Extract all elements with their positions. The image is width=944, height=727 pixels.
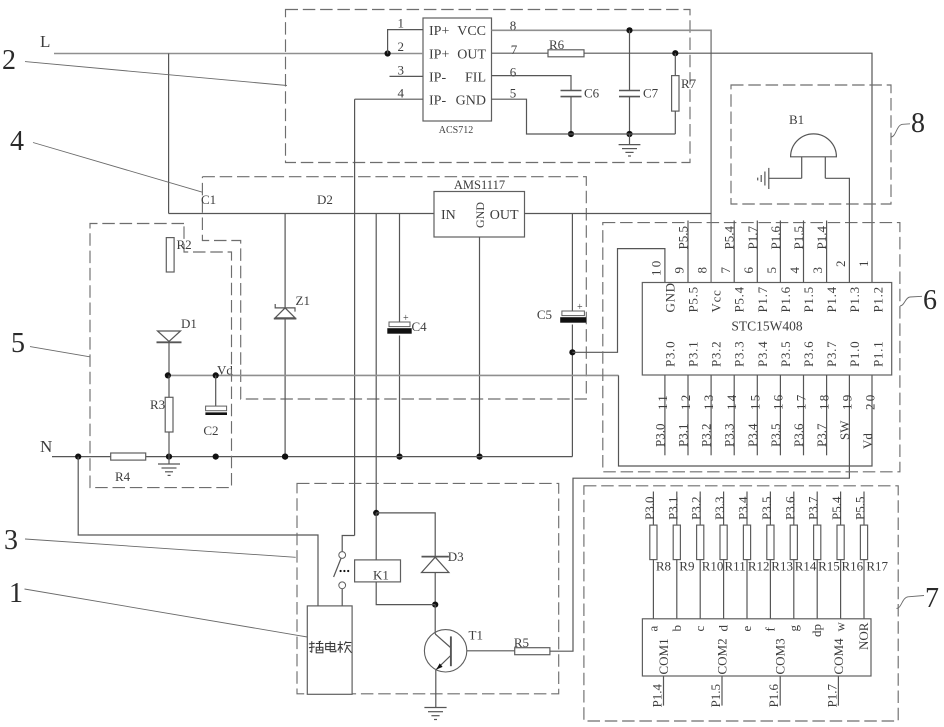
svg-text:R5: R5: [514, 635, 529, 650]
svg-text:1: 1: [398, 16, 405, 31]
svg-text:IP+: IP+: [429, 24, 449, 39]
svg-text:8: 8: [695, 267, 710, 274]
svg-text:P1.4: P1.4: [650, 684, 665, 708]
svg-text:C1: C1: [201, 192, 216, 207]
svg-text:OUT: OUT: [457, 48, 486, 63]
svg-text:+: +: [577, 302, 583, 313]
svg-text:w: w: [833, 622, 848, 632]
svg-text:P3.3: P3.3: [712, 497, 727, 520]
svg-text:K1: K1: [373, 568, 389, 583]
svg-text:P3.2: P3.2: [699, 424, 714, 447]
svg-text:P3.1: P3.1: [676, 424, 691, 447]
svg-text:FIL: FIL: [465, 71, 486, 86]
svg-text:GND: GND: [473, 202, 487, 228]
svg-text:P1.2: P1.2: [870, 286, 885, 312]
svg-text:R3: R3: [150, 397, 165, 412]
svg-text:a: a: [645, 626, 660, 632]
svg-text:7: 7: [511, 42, 518, 57]
svg-text:P5.5: P5.5: [676, 226, 691, 249]
svg-text:P1.5: P1.5: [791, 226, 806, 249]
svg-text:R13: R13: [771, 559, 793, 574]
svg-text:P1.0: P1.0: [847, 341, 862, 367]
svg-text:SW: SW: [837, 420, 852, 440]
svg-text:B1: B1: [789, 112, 804, 127]
svg-text:IP+: IP+: [429, 48, 449, 63]
svg-text:3: 3: [398, 63, 405, 78]
svg-text:P1.4: P1.4: [814, 226, 829, 250]
svg-text:GND: GND: [662, 282, 677, 312]
svg-text:C7: C7: [643, 86, 659, 101]
svg-text:R2: R2: [177, 237, 192, 252]
svg-text:4: 4: [398, 86, 405, 101]
svg-text:17: 17: [794, 393, 809, 410]
svg-text:R4: R4: [115, 469, 131, 484]
svg-text:4: 4: [10, 126, 24, 157]
svg-text:5: 5: [764, 267, 779, 274]
svg-text:R12: R12: [748, 559, 770, 574]
svg-text:D2: D2: [317, 192, 333, 207]
svg-text:VCC: VCC: [457, 24, 486, 39]
svg-text:P3.1: P3.1: [686, 341, 701, 367]
svg-text:P1.6: P1.6: [778, 286, 793, 312]
svg-text:D1: D1: [181, 316, 197, 331]
svg-text:7: 7: [925, 583, 939, 614]
svg-text:3: 3: [4, 525, 18, 556]
svg-text:P5.4: P5.4: [829, 496, 844, 520]
svg-text:P3.6: P3.6: [791, 423, 806, 447]
svg-text:7: 7: [718, 267, 733, 274]
svg-text:P5.5: P5.5: [853, 497, 868, 520]
svg-text:P3.0: P3.0: [652, 424, 667, 447]
svg-text:P1.6: P1.6: [766, 684, 781, 708]
svg-text:14: 14: [724, 393, 739, 410]
svg-text:9: 9: [672, 267, 687, 274]
svg-text:P3.5: P3.5: [759, 497, 774, 520]
svg-text:f: f: [762, 627, 777, 632]
svg-text:R15: R15: [818, 559, 840, 574]
svg-text:P3.6: P3.6: [782, 496, 797, 520]
svg-text:11: 11: [655, 393, 670, 410]
svg-text:P3.7: P3.7: [806, 496, 821, 520]
svg-text:STC15W408: STC15W408: [731, 319, 803, 334]
svg-text:2: 2: [398, 39, 405, 54]
svg-text:20: 20: [862, 393, 877, 410]
svg-text:5: 5: [510, 86, 517, 101]
svg-text:C5: C5: [537, 307, 552, 322]
svg-text:IP-: IP-: [429, 71, 446, 86]
svg-text:P3.5: P3.5: [778, 341, 793, 367]
svg-text:IN: IN: [441, 208, 456, 223]
svg-text:P1.5: P1.5: [801, 286, 816, 312]
svg-text:P3.6: P3.6: [801, 341, 816, 367]
svg-text:P3.3: P3.3: [732, 341, 747, 367]
svg-text:R9: R9: [679, 559, 694, 574]
svg-text:5: 5: [11, 328, 25, 359]
svg-text:10: 10: [649, 259, 664, 276]
svg-text:C2: C2: [203, 423, 218, 438]
svg-text:P1.7: P1.7: [755, 286, 770, 312]
svg-text:16: 16: [770, 393, 785, 410]
svg-text:Vcc: Vcc: [709, 289, 724, 312]
svg-text:c: c: [692, 626, 707, 632]
svg-text:R11: R11: [725, 559, 746, 574]
svg-text:Z1: Z1: [296, 293, 310, 308]
svg-text:P3.2: P3.2: [689, 497, 704, 520]
svg-text:P3.5: P3.5: [768, 424, 783, 447]
svg-text:COM1: COM1: [656, 638, 671, 674]
svg-text:N: N: [40, 437, 52, 456]
svg-text:19: 19: [839, 393, 854, 410]
svg-text:T1: T1: [469, 628, 483, 643]
svg-text:OUT: OUT: [490, 208, 519, 223]
svg-text:2: 2: [2, 45, 16, 76]
svg-text:P3.0: P3.0: [662, 341, 677, 367]
svg-text:P1.7: P1.7: [745, 226, 760, 250]
svg-text:L: L: [40, 32, 50, 51]
svg-text:d: d: [716, 625, 731, 632]
svg-text:dp: dp: [809, 624, 824, 637]
svg-text:IP-: IP-: [429, 94, 446, 109]
svg-text:COM3: COM3: [773, 638, 788, 674]
svg-text:15: 15: [747, 393, 762, 410]
svg-text:8: 8: [911, 108, 925, 139]
svg-text:P3.3: P3.3: [722, 424, 737, 447]
svg-text:18: 18: [817, 393, 832, 410]
svg-text:12: 12: [678, 393, 693, 410]
svg-text:COM2: COM2: [715, 638, 730, 674]
svg-text:b: b: [669, 625, 684, 632]
svg-text:13: 13: [701, 393, 716, 410]
svg-text:R7: R7: [681, 76, 697, 91]
svg-text:P1.4: P1.4: [824, 286, 839, 312]
svg-text:Vd: Vd: [860, 433, 875, 449]
svg-text:g: g: [786, 625, 801, 632]
svg-text:P3.4: P3.4: [755, 341, 770, 367]
svg-text:P1.5: P1.5: [708, 684, 723, 707]
svg-text:e: e: [739, 626, 754, 632]
svg-text:COM4: COM4: [831, 638, 846, 675]
svg-text:C4: C4: [412, 319, 428, 334]
svg-text:R16: R16: [842, 559, 864, 574]
svg-text:P3.7: P3.7: [824, 341, 839, 367]
svg-text:P1.6: P1.6: [768, 226, 783, 250]
svg-text:R10: R10: [702, 559, 724, 574]
svg-text:P5.4: P5.4: [722, 226, 737, 250]
svg-text:P3.0: P3.0: [642, 497, 657, 520]
svg-text:1: 1: [856, 261, 871, 268]
svg-text:P1.1: P1.1: [870, 341, 885, 367]
svg-text:P3.4: P3.4: [745, 423, 760, 447]
svg-text:3: 3: [810, 267, 825, 274]
svg-text:GND: GND: [456, 94, 486, 109]
svg-text:P3.2: P3.2: [709, 341, 724, 367]
svg-text:1: 1: [9, 578, 23, 609]
svg-text:D3: D3: [448, 549, 464, 564]
svg-text:P1.3: P1.3: [847, 286, 862, 312]
svg-text:2: 2: [833, 261, 848, 268]
svg-text:R17: R17: [866, 559, 888, 574]
svg-text:+: +: [403, 313, 409, 324]
svg-text:P3.7: P3.7: [814, 423, 829, 447]
svg-text:6: 6: [741, 267, 756, 274]
svg-text:R14: R14: [795, 559, 817, 574]
svg-text:P5.4: P5.4: [732, 286, 747, 312]
svg-text:R6: R6: [549, 37, 565, 52]
svg-text:6: 6: [923, 285, 937, 316]
svg-text:6: 6: [510, 65, 517, 80]
svg-text:NOR: NOR: [856, 622, 871, 650]
svg-text:R8: R8: [656, 559, 671, 574]
svg-text:4: 4: [787, 267, 802, 274]
svg-text:P3.4: P3.4: [736, 496, 751, 520]
svg-text:AMS1117: AMS1117: [454, 178, 505, 192]
svg-text:P5.5: P5.5: [686, 286, 701, 312]
svg-text:ACS712: ACS712: [439, 125, 473, 136]
svg-text:P1.7: P1.7: [824, 684, 839, 708]
svg-text:P3.1: P3.1: [665, 497, 680, 520]
svg-text:C6: C6: [584, 86, 600, 101]
